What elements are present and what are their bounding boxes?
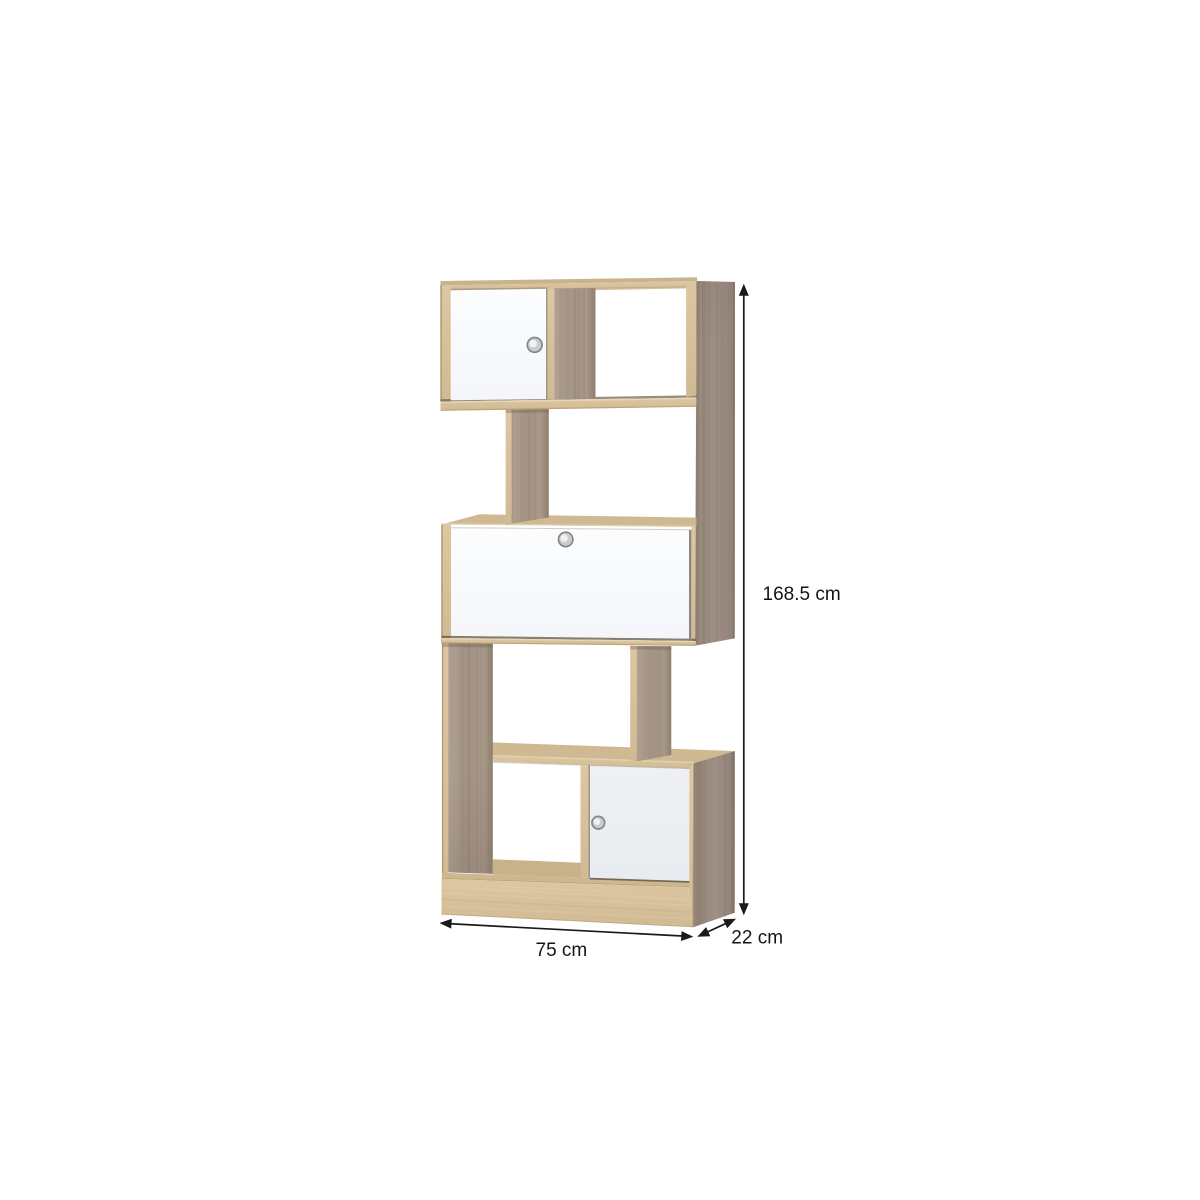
svg-text:22 cm: 22 cm — [731, 927, 783, 948]
svg-text:75 cm: 75 cm — [536, 940, 588, 961]
svg-text:168.5 cm: 168.5 cm — [763, 584, 841, 605]
